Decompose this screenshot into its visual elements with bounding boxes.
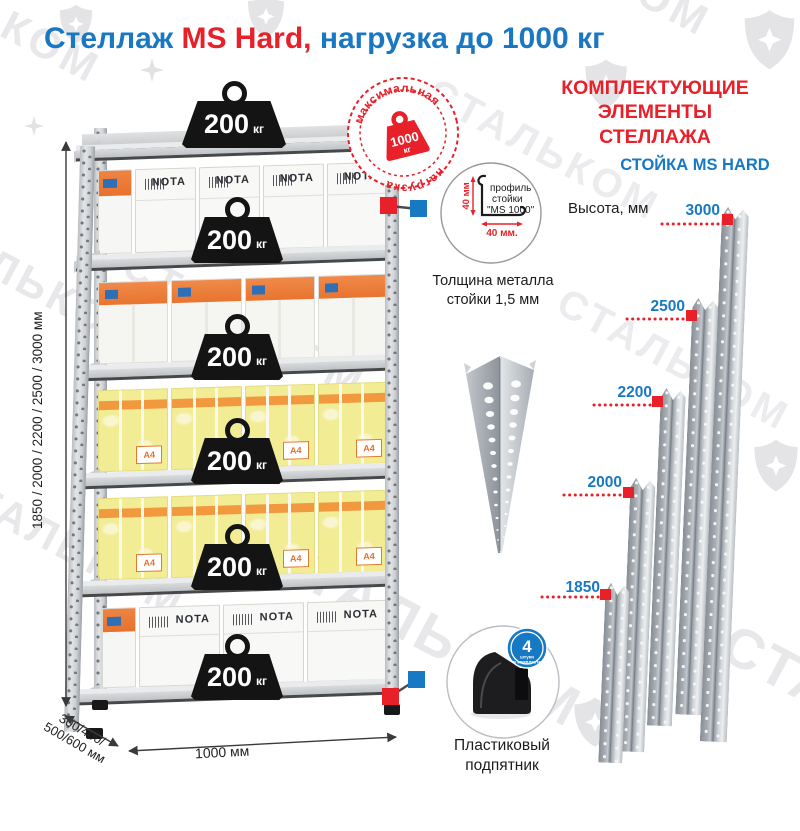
weight-value: 200 [204,111,249,138]
shield-watermark-icon [742,6,797,72]
height-marker-2500 [686,310,697,321]
paper-box-orange-lid [318,274,388,358]
sparkle-watermark-icon [140,58,164,82]
callout-marker-profile [410,200,427,217]
foot-caption-line2: подпятник [432,756,572,776]
box-brand-label: NOTA [176,613,210,626]
paper-box-a4: A4 [318,490,388,574]
post-height-label-1850: 1850 [540,579,600,597]
rack-foot [92,700,108,710]
a4-label: A4 [136,553,162,572]
weight-unit: кг [256,564,267,578]
weight-unit: кг [256,354,267,368]
weight-200kg: 200кг [191,634,283,700]
plastic-foot-photo: 4 штуки в комплекте [443,622,563,742]
post-height-label-2000: 2000 [562,474,622,492]
weight-value: 200 [207,664,252,691]
callout-marker-foot-circle [408,671,425,688]
profile-caption-line2: стойки 1,5 мм [418,291,568,310]
width-dimension-line [129,737,396,751]
weight-value: 200 [207,344,252,371]
box-label-tag [103,179,117,188]
post-profile-diagram: 40 мм 40 мм. профиль стойки "MS 1000" [438,160,544,266]
title-part-blue: Стеллаж [44,22,181,55]
profile-label-1: профиль [490,182,531,194]
weight-unit: кг [256,237,267,251]
profile-caption: Толщина металла стойки 1,5 мм [418,272,568,310]
weight-200kg: 200кг [182,81,286,148]
box-brand-label: NOTA [260,611,294,624]
a4-label: A4 [136,445,162,464]
paper-box-end [98,169,132,254]
a4-label: A4 [283,549,309,568]
paper-box-nota: NOTA [307,600,388,682]
a4-label: A4 [356,439,382,458]
page-title: Стеллаж MS Hard, нагрузка до 1000 кг [44,22,605,56]
kit-badge-value: 4 [522,637,532,656]
weight-unit: кг [256,674,267,688]
title-part-red: MS Hard, [181,22,311,55]
weight-value: 200 [207,227,252,254]
rack-post-front-right [385,150,399,702]
components-subheading: СТОЙКА MS HARD [600,156,790,175]
callout-marker-foot [382,688,399,705]
height-marker-2000 [623,487,634,498]
sparkle-watermark-icon [24,116,44,136]
rack-post-front-left [64,146,95,732]
paper-box-nota: NOTA [135,167,196,253]
paper-box-a4: A4 [318,382,388,466]
rack-width-dimension-label: 1000 мм [195,743,250,762]
title-part-blue2: нагрузка до 1000 кг [311,22,604,55]
profile-dim-vertical: 40 мм [461,182,472,209]
post-perspective-photo [452,352,548,560]
kit-badge-arc: в комплекте [513,660,541,665]
weight-value: 200 [207,554,252,581]
components-heading: КОМПЛЕКТУЮЩИЕ ЭЛЕМЕНТЫ СТЕЛЛАЖА [550,76,760,149]
height-marker-3000 [722,214,733,225]
weight-unit: кг [256,458,267,472]
profile-label-3: "MS 1000" [487,205,535,216]
post-height-label-2500: 2500 [625,298,685,316]
barcode-icon [317,611,337,623]
paper-box-orange-lid [98,280,168,364]
callout-marker-post [380,197,397,214]
shield-watermark-icon [752,436,800,494]
height-marker-2200 [652,396,663,407]
weight-200kg: 200кг [191,314,283,380]
post-height-label-2200: 2200 [592,384,652,402]
post-height-label-3000: 3000 [660,202,720,220]
height-marker-1850 [600,589,611,600]
height-axis-label: Высота, мм [568,200,648,217]
barcode-icon [149,616,169,628]
profile-caption-line1: Толщина металла [418,272,568,291]
a4-label: A4 [283,441,309,460]
weight-value: 200 [207,448,252,475]
plastic-foot-caption: Пластиковый подпятник [432,736,572,776]
paper-box-a4: A4 [98,388,168,472]
weight-200kg: 200кг [191,524,283,590]
components-heading-line1: КОМПЛЕКТУЮЩИЕ [550,76,760,100]
box-brand-label: NOTA [280,172,314,185]
foot-caption-line1: Пластиковый [432,736,572,756]
box-brand-label: NOTA [216,174,250,187]
box-brand-label: NOTA [152,176,186,189]
rack-height-dimension-label: 1850 / 2000 / 2200 / 2500 / 3000 мм [30,252,45,588]
infographic-page: { "title": {"part1": "Стеллаж ", "part2"… [0,0,800,800]
paper-box-end [102,607,136,688]
box-brand-label: NOTA [344,608,378,621]
weight-unit: кг [253,122,264,136]
weight-200kg: 200кг [191,197,283,263]
a4-label: A4 [356,547,382,566]
components-heading-line2: ЭЛЕМЕНТЫ СТЕЛЛАЖА [550,100,760,149]
rack-foot-highlighted [384,704,400,715]
profile-label-2: стойки [492,194,523,205]
weight-200kg: 200кг [191,418,283,484]
profile-dim-horizontal: 40 мм. [486,228,518,239]
paper-box-a4: A4 [98,496,168,580]
barcode-icon [233,614,253,626]
